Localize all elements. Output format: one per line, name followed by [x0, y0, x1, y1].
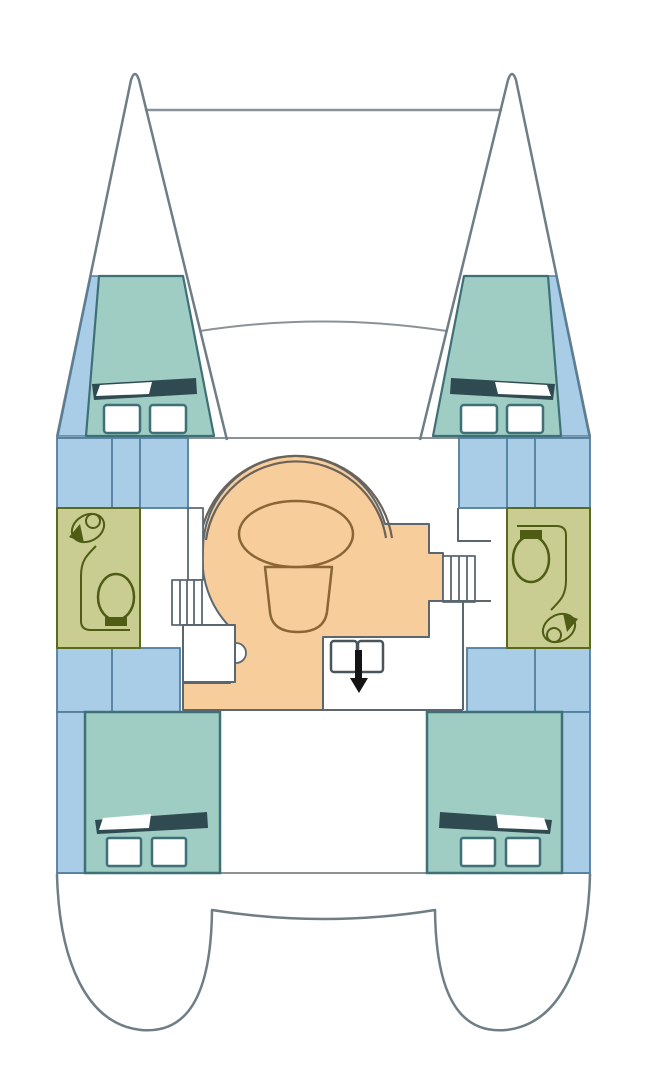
port-aft-berth-strip [57, 712, 85, 873]
salon [172, 456, 491, 710]
stair-landing [188, 508, 203, 580]
toilet-base [105, 617, 127, 626]
bridgedeck-stern-curve [212, 910, 435, 919]
catamaran-floor-plan [0, 0, 656, 1080]
pillow [104, 405, 140, 433]
dinette-table [239, 501, 353, 567]
galley-sink-left [331, 641, 357, 672]
berth-section [57, 438, 188, 508]
port-companionway-stairs [172, 508, 203, 625]
stool-seat [265, 567, 332, 632]
port-mid-berth-band [57, 438, 188, 508]
nav-seat-body [183, 625, 235, 682]
entry-arrow-shaft [355, 650, 362, 680]
berth-section [57, 648, 180, 712]
port-stern-outline [57, 874, 212, 1030]
corridor-wall [458, 508, 491, 541]
deck-plan-svg [0, 0, 656, 1080]
pillow [152, 838, 186, 866]
coachroof-front-arc [200, 322, 447, 332]
port-lower-berth-band [57, 648, 180, 712]
port-head [57, 508, 140, 648]
entry-arrow-head [350, 678, 368, 693]
pillow [150, 405, 186, 433]
starboard-companionway-stairs [443, 508, 491, 602]
pillow [107, 838, 141, 866]
starboard-head [507, 508, 590, 648]
